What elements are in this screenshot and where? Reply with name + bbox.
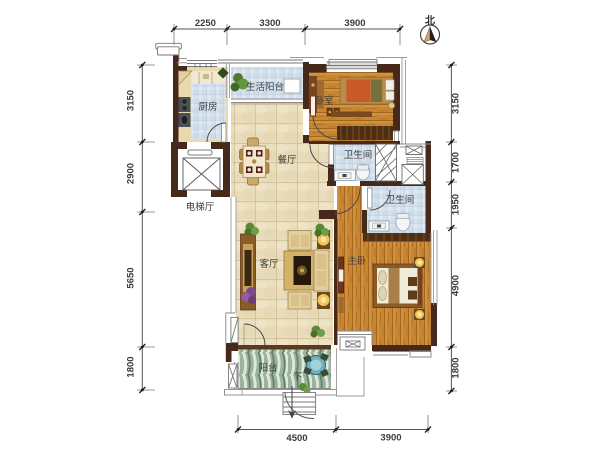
svg-text:卫生间: 卫生间 [344,149,373,161]
svg-text:3900: 3900 [380,433,401,444]
svg-text:5650: 5650 [126,267,137,288]
svg-text:卫生间: 卫生间 [386,194,415,206]
svg-text:3300: 3300 [259,18,280,29]
svg-text:4900: 4900 [451,275,462,296]
svg-text:1700: 1700 [451,152,462,173]
svg-text:餐厅: 餐厅 [277,154,297,166]
svg-text:3900: 3900 [344,18,365,29]
svg-text:1950: 1950 [451,194,462,215]
svg-text:主卧: 主卧 [347,255,367,267]
svg-text:3150: 3150 [451,93,462,114]
svg-text:1800: 1800 [451,357,462,378]
svg-text:3150: 3150 [126,90,137,111]
svg-text:客厅: 客厅 [259,258,279,270]
svg-text:生活阳台: 生活阳台 [246,81,284,93]
svg-text:阳台: 阳台 [258,362,277,374]
svg-text:1800: 1800 [126,356,137,377]
svg-text:4500: 4500 [286,433,307,444]
svg-text:下: 下 [293,372,303,383]
svg-text:2900: 2900 [126,163,137,184]
svg-text:电梯厅: 电梯厅 [186,201,215,213]
svg-text:厨房: 厨房 [198,101,217,113]
svg-text:卧室: 卧室 [314,95,333,107]
svg-text:北: 北 [425,14,435,27]
svg-text:2250: 2250 [195,18,216,29]
